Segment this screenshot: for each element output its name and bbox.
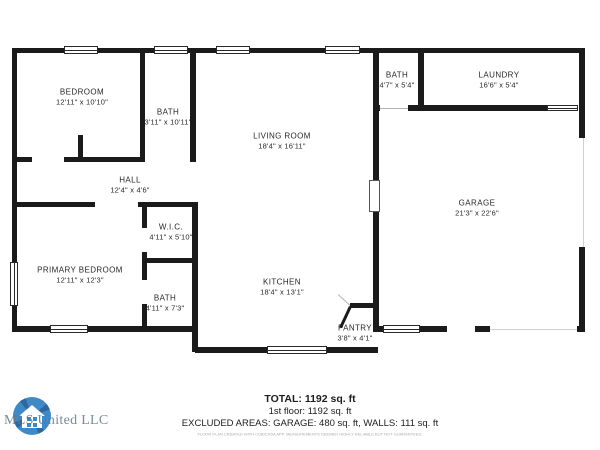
wall-segment <box>190 48 196 162</box>
wall-segment <box>98 48 154 53</box>
wall-segment <box>12 157 32 162</box>
window-marker <box>154 46 188 54</box>
room-label-kitchen: KITCHEN 18'4" x 13'1" <box>260 277 304 296</box>
door-marker <box>369 180 380 212</box>
room-label-living-room: LIVING ROOM 18'4" x 16'11" <box>253 131 311 150</box>
wall-segment <box>350 303 378 308</box>
wall-segment <box>142 258 198 263</box>
wall-segment <box>12 326 50 332</box>
floor-plan: BEDROOM 12'11" x 10'10" BATH 3'11" x 10'… <box>0 0 600 450</box>
room-label-bath-top: BATH 3'11" x 10'11" <box>145 107 192 126</box>
wall-segment <box>373 48 379 180</box>
total-area: TOTAL: 1192 sq. ft <box>20 393 600 405</box>
room-dims: 4'11" x 5'10" <box>149 232 192 241</box>
room-label-hall: HALL 12'4" x 4'6" <box>110 175 149 194</box>
room-name: BEDROOM <box>56 87 108 97</box>
room-name: KITCHEN <box>260 277 304 287</box>
room-name: LIVING ROOM <box>253 131 311 141</box>
room-name: BATH <box>380 70 415 80</box>
room-dims: 4'7" x 5'4" <box>380 80 415 89</box>
side-opening <box>583 138 584 247</box>
room-label-primary-bedroom: PRIMARY BEDROOM 12'11" x 12'3" <box>37 265 123 284</box>
wall-segment <box>142 304 147 326</box>
disclaimer-text: FLOOR PLAN CREATED WITH CUBICASA APP. ME… <box>165 432 455 437</box>
window-marker <box>216 46 250 54</box>
wall-segment <box>12 48 17 262</box>
wall-segment <box>12 48 64 53</box>
wall-segment <box>250 48 325 53</box>
wall-segment <box>373 105 380 111</box>
window-marker <box>325 46 360 54</box>
room-name: PRIMARY BEDROOM <box>37 265 123 275</box>
wall-segment <box>475 326 490 332</box>
room-name: W.I.C. <box>149 222 192 232</box>
window-marker <box>547 105 578 111</box>
wall-segment <box>579 48 585 138</box>
wall-segment <box>142 252 147 280</box>
room-dims: 12'11" x 12'3" <box>37 275 123 284</box>
window-marker <box>267 346 327 354</box>
wall-segment <box>138 202 198 207</box>
window-marker <box>50 325 88 333</box>
room-label-bath-primary: BATH 4'11" x 7'3" <box>146 293 185 312</box>
wall-segment <box>420 326 447 332</box>
room-label-wic: W.I.C. 4'11" x 5'10" <box>149 222 192 241</box>
wall-segment <box>373 212 379 332</box>
wall-segment <box>142 202 147 228</box>
wall-segment <box>195 347 267 353</box>
wall-segment <box>140 48 145 162</box>
wall-segment <box>579 247 585 332</box>
room-name: HALL <box>110 175 149 185</box>
room-label-bedroom: BEDROOM 12'11" x 10'10" <box>56 87 108 106</box>
window-marker <box>10 262 18 306</box>
room-label-laundry: LAUNDRY 16'6" x 5'4" <box>479 70 520 89</box>
room-label-bath-right: BATH 4'7" x 5'4" <box>380 70 415 89</box>
room-name: LAUNDRY <box>479 70 520 80</box>
wall-segment <box>88 326 198 332</box>
wall-segment <box>78 135 83 157</box>
door-opening <box>380 108 408 109</box>
wall-segment <box>64 157 145 162</box>
room-label-garage: GARAGE 21'3" x 22'6" <box>455 198 499 217</box>
wall-segment <box>408 105 547 111</box>
room-name: BATH <box>145 107 192 117</box>
room-dims: 21'3" x 22'6" <box>455 208 499 217</box>
wall-segment <box>12 202 95 207</box>
room-dims: 18'4" x 13'1" <box>260 287 304 296</box>
garage-door-opening <box>490 329 577 330</box>
logo-text: MLS United LLC <box>4 413 109 429</box>
door-swing-line <box>338 294 351 306</box>
room-name: GARAGE <box>455 198 499 208</box>
room-dims: 16'6" x 5'4" <box>479 80 520 89</box>
wall-segment <box>418 48 424 111</box>
window-marker <box>64 46 98 54</box>
room-dims: 4'11" x 7'3" <box>146 303 185 312</box>
room-dims: 18'4" x 16'11" <box>253 141 311 150</box>
room-dims: 3'8" x 4'1" <box>338 333 373 342</box>
wall-segment <box>360 48 585 53</box>
room-dims: 3'11" x 10'11" <box>145 117 192 126</box>
window-marker <box>383 325 420 333</box>
room-dims: 12'4" x 4'6" <box>110 185 149 194</box>
wall-segment <box>373 326 383 332</box>
wall-segment <box>327 347 378 353</box>
room-name: BATH <box>146 293 185 303</box>
room-dims: 12'11" x 10'10" <box>56 97 108 106</box>
